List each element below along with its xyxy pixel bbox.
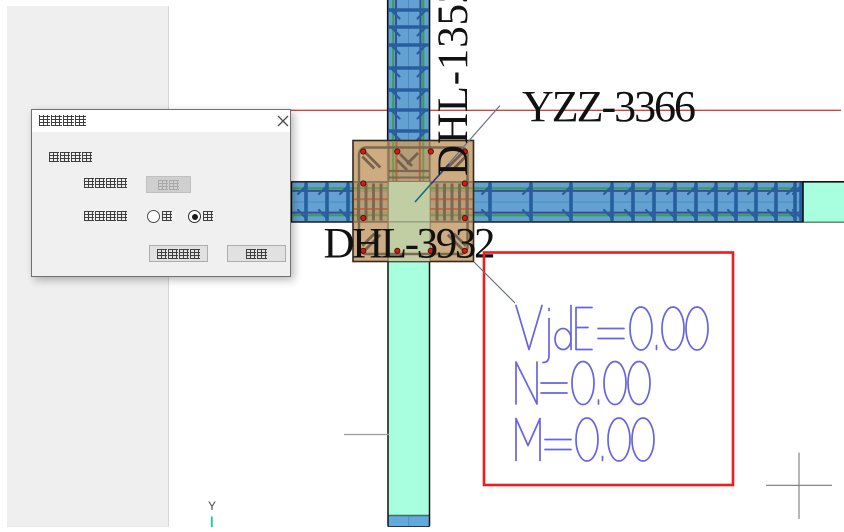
svg-text:YZZ-3366: YZZ-3366 (522, 82, 696, 131)
svg-text:DHL-1352: DHL-1352 (430, 0, 477, 176)
svg-text:DHL-3932: DHL-3932 (324, 220, 496, 267)
svg-text:Y: Y (208, 499, 216, 513)
